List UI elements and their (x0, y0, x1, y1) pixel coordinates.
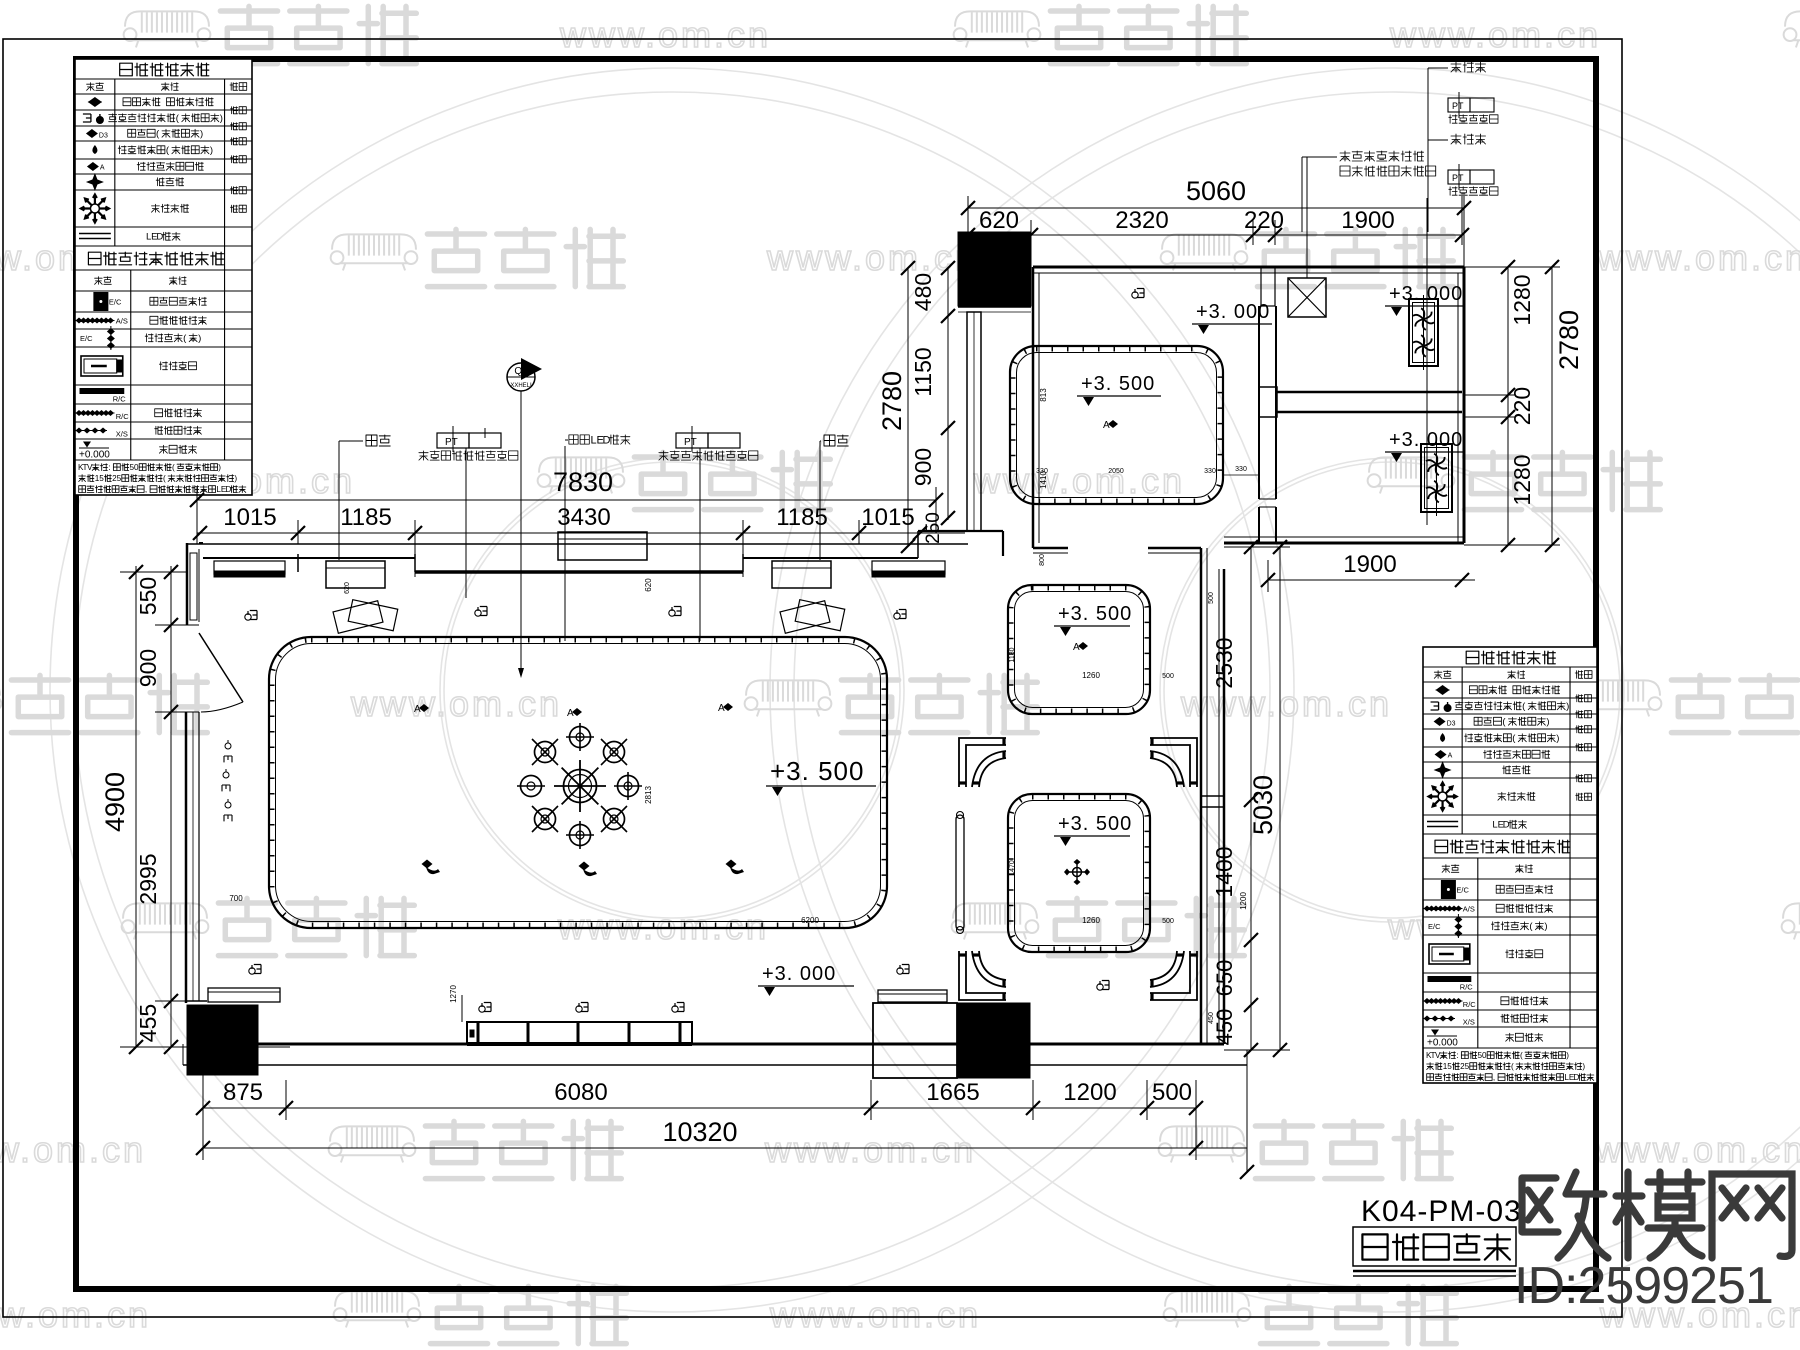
svg-text:1200: 1200 (1063, 1079, 1116, 1106)
svg-text:): ) (198, 333, 201, 344)
svg-text::: : (1456, 1051, 1458, 1060)
svg-text:+3. 500: +3. 500 (1058, 813, 1132, 835)
svg-text:(: ( (163, 474, 166, 483)
svg-text:5: 5 (1465, 1062, 1470, 1071)
svg-text:620: 620 (644, 578, 653, 592)
svg-text:620: 620 (344, 582, 351, 594)
svg-text:): ) (220, 113, 223, 124)
svg-text:+3. 000: +3. 000 (762, 963, 836, 985)
svg-text:R/C: R/C (1460, 983, 1474, 992)
svg-text:A: A (100, 165, 105, 172)
svg-text:2995: 2995 (135, 853, 161, 904)
svg-text:D: D (603, 434, 611, 446)
svg-text:(: ( (1520, 1051, 1523, 1060)
svg-text:813: 813 (1039, 388, 1048, 402)
svg-text:500: 500 (1152, 1079, 1192, 1106)
svg-text:2780: 2780 (877, 371, 907, 431)
svg-text:7830: 7830 (553, 467, 613, 497)
svg-text:0: 0 (134, 463, 139, 472)
svg-text:875: 875 (223, 1079, 263, 1106)
svg-text:www.om.cn: www.om.cn (766, 237, 978, 278)
svg-text:XXHELI: XXHELI (510, 383, 532, 389)
svg-text:330: 330 (1036, 468, 1048, 475)
svg-text:D3: D3 (99, 133, 108, 140)
svg-text:+3. 000: +3. 000 (1389, 283, 1463, 305)
svg-text:+3. 500: +3. 500 (770, 756, 864, 786)
svg-text:ID:2599251: ID:2599251 (1514, 1257, 1773, 1315)
svg-text:,: , (145, 485, 147, 494)
svg-text:1260: 1260 (1082, 671, 1100, 680)
svg-text:): ) (1544, 921, 1547, 932)
svg-text:): ) (1566, 701, 1569, 712)
svg-text:A: A (1103, 420, 1110, 431)
svg-text:,: , (1493, 1073, 1495, 1082)
svg-text:www.om.cn: www.om.cn (0, 1294, 151, 1335)
svg-text:2530: 2530 (1211, 637, 1237, 688)
svg-text:A: A (718, 703, 725, 714)
svg-text:www.om.cn: www.om.cn (973, 460, 1185, 501)
svg-text:1470: 1470 (1009, 860, 1016, 876)
svg-text:www.om.cn: www.om.cn (764, 1129, 976, 1170)
svg-text:www.om.cn: www.om.cn (559, 14, 771, 55)
svg-text:+0.000: +0.000 (1427, 1038, 1458, 1049)
svg-text:455: 455 (135, 1004, 161, 1042)
svg-text:R/C: R/C (116, 412, 130, 421)
svg-text:D: D (1503, 820, 1510, 831)
svg-text:www.om.cn: www.om.cn (350, 683, 562, 724)
svg-text:D: D (1573, 1073, 1579, 1082)
svg-text:5030: 5030 (1248, 775, 1278, 835)
svg-text:E/C: E/C (80, 334, 93, 343)
svg-text:K04-PM-03: K04-PM-03 (1361, 1195, 1522, 1228)
svg-text:D: D (225, 485, 231, 494)
svg-text:2813: 2813 (644, 786, 653, 804)
svg-text:1015: 1015 (223, 504, 276, 531)
svg-text:5: 5 (117, 474, 122, 483)
svg-text:PT: PT (684, 437, 697, 448)
svg-text:R/C: R/C (113, 395, 127, 404)
svg-text:www.om.cn: www.om.cn (1594, 1129, 1800, 1170)
svg-text:): ) (1556, 733, 1559, 744)
svg-text:4900: 4900 (100, 772, 130, 832)
svg-text:330: 330 (1235, 466, 1247, 473)
svg-text:): ) (1566, 1051, 1569, 1060)
svg-text:X/S: X/S (1463, 1018, 1475, 1027)
svg-text:A: A (1073, 642, 1080, 653)
svg-text:900: 900 (910, 448, 936, 486)
svg-text:PT: PT (1452, 101, 1464, 111)
svg-text:500: 500 (1162, 918, 1174, 925)
svg-text:D3: D3 (1447, 721, 1456, 728)
svg-text:A/S: A/S (1463, 905, 1475, 914)
svg-text:E/C: E/C (1428, 922, 1441, 931)
svg-text:): ) (1582, 1062, 1585, 1071)
svg-text:10320: 10320 (662, 1117, 737, 1147)
svg-text:1130: 1130 (1009, 647, 1016, 662)
svg-text:550: 550 (135, 577, 161, 615)
svg-text:620: 620 (979, 207, 1019, 234)
svg-text:2050: 2050 (1108, 468, 1124, 475)
svg-text:+3. 500: +3. 500 (1058, 603, 1132, 625)
svg-text:6080: 6080 (554, 1079, 607, 1106)
svg-text:800: 800 (1039, 554, 1046, 566)
svg-text:E/C: E/C (109, 298, 122, 307)
svg-text:X/S: X/S (116, 430, 128, 439)
svg-text:5: 5 (99, 474, 104, 483)
svg-text:E/C: E/C (1456, 886, 1469, 895)
svg-text:480: 480 (910, 273, 936, 311)
svg-text:+3. 000: +3. 000 (1389, 429, 1463, 451)
svg-text:): ) (210, 145, 213, 156)
svg-text:650: 650 (1212, 960, 1237, 997)
svg-text:2780: 2780 (1554, 310, 1584, 370)
svg-text:www.om.cn: www.om.cn (1389, 14, 1601, 55)
svg-text:900: 900 (135, 649, 161, 687)
svg-text:5060: 5060 (1186, 176, 1246, 206)
svg-text:1900: 1900 (1343, 551, 1396, 578)
svg-text:500: 500 (1208, 592, 1215, 604)
svg-text:220: 220 (1509, 387, 1535, 425)
svg-text:1015: 1015 (861, 504, 914, 531)
svg-text:): ) (1546, 717, 1549, 728)
svg-text:Q1: Q1 (514, 366, 528, 377)
svg-text:+0.000: +0.000 (79, 450, 110, 461)
svg-text:450: 450 (1208, 1012, 1215, 1024)
svg-text:www.om.cn: www.om.cn (557, 906, 769, 947)
svg-text:+3. 000: +3. 000 (1196, 301, 1270, 323)
svg-text:www.om.cn: www.om.cn (1596, 237, 1800, 278)
svg-text:1900: 1900 (1341, 207, 1394, 234)
svg-text:700: 700 (229, 894, 243, 903)
svg-text:1260: 1260 (1082, 916, 1100, 925)
svg-text:1270: 1270 (449, 985, 458, 1003)
svg-text:): ) (200, 129, 203, 140)
svg-text:(: ( (1511, 1062, 1514, 1071)
svg-text:6200: 6200 (801, 916, 819, 925)
svg-text:A: A (567, 708, 574, 719)
svg-text:1185: 1185 (340, 504, 392, 531)
svg-text:R/C: R/C (1463, 1000, 1477, 1009)
svg-text:1150: 1150 (910, 347, 936, 396)
svg-text::: : (108, 463, 110, 472)
svg-text:): ) (234, 474, 237, 483)
svg-text:A: A (1448, 753, 1453, 760)
svg-text:(: ( (172, 463, 175, 472)
svg-text:330: 330 (1204, 468, 1216, 475)
svg-text:): ) (218, 463, 221, 472)
svg-text:PT: PT (1452, 173, 1464, 183)
svg-text:2320: 2320 (1115, 207, 1168, 234)
svg-text:1200: 1200 (1239, 892, 1248, 910)
svg-text:D: D (156, 232, 163, 243)
svg-text:1400: 1400 (1211, 846, 1237, 897)
svg-text:220: 220 (1244, 207, 1284, 234)
svg-text:5: 5 (1447, 1062, 1452, 1071)
svg-text:1665: 1665 (926, 1079, 979, 1106)
svg-text:+3. 500: +3. 500 (1081, 373, 1155, 395)
svg-text:1280: 1280 (1509, 274, 1535, 325)
svg-text:www.om.cn: www.om.cn (769, 1294, 981, 1335)
svg-text:450: 450 (1212, 1009, 1237, 1046)
svg-text:PT: PT (445, 437, 458, 448)
svg-text:A/S: A/S (116, 317, 128, 326)
svg-text:0: 0 (1482, 1051, 1487, 1060)
svg-text:A: A (414, 704, 421, 715)
svg-text:500: 500 (1162, 673, 1174, 680)
svg-text:1280: 1280 (1509, 454, 1535, 505)
